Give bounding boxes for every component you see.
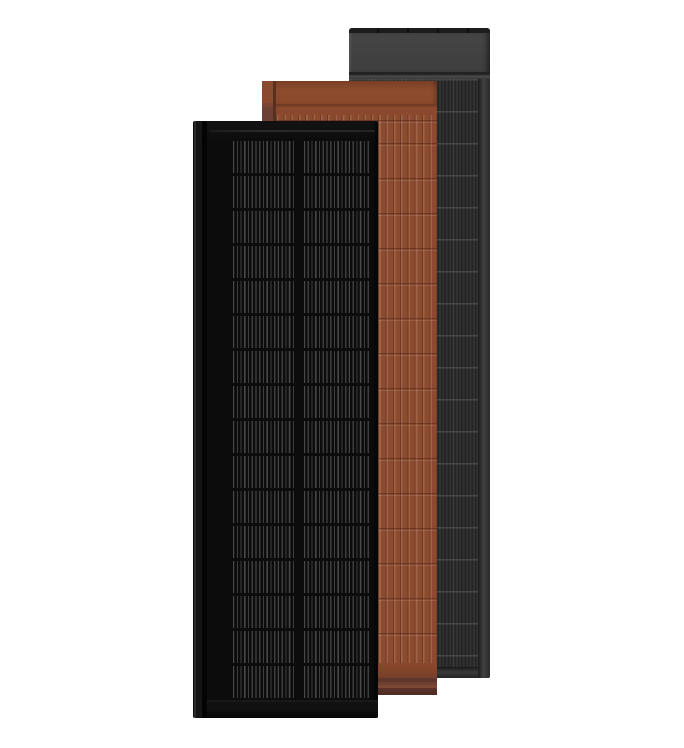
terracotta-panel-left-tab bbox=[262, 81, 276, 121]
terracotta-panel-top-band bbox=[276, 81, 437, 104]
gray-panel-right-frame bbox=[478, 79, 490, 678]
black-panel-bottom-frame bbox=[207, 700, 378, 718]
gray-panel-top-section bbox=[349, 33, 490, 72]
product-stage bbox=[0, 0, 684, 748]
solar-panel-black bbox=[193, 121, 378, 718]
black-panel-left-rail bbox=[193, 121, 207, 718]
black-panel-cell-column-right bbox=[304, 138, 370, 700]
black-panel-top-highlight bbox=[209, 130, 375, 132]
gray-panel-ledge bbox=[349, 72, 490, 79]
black-panel-body bbox=[207, 121, 378, 718]
black-panel-cell-column-left bbox=[233, 138, 296, 700]
terracotta-panel-upper-band bbox=[276, 107, 437, 115]
